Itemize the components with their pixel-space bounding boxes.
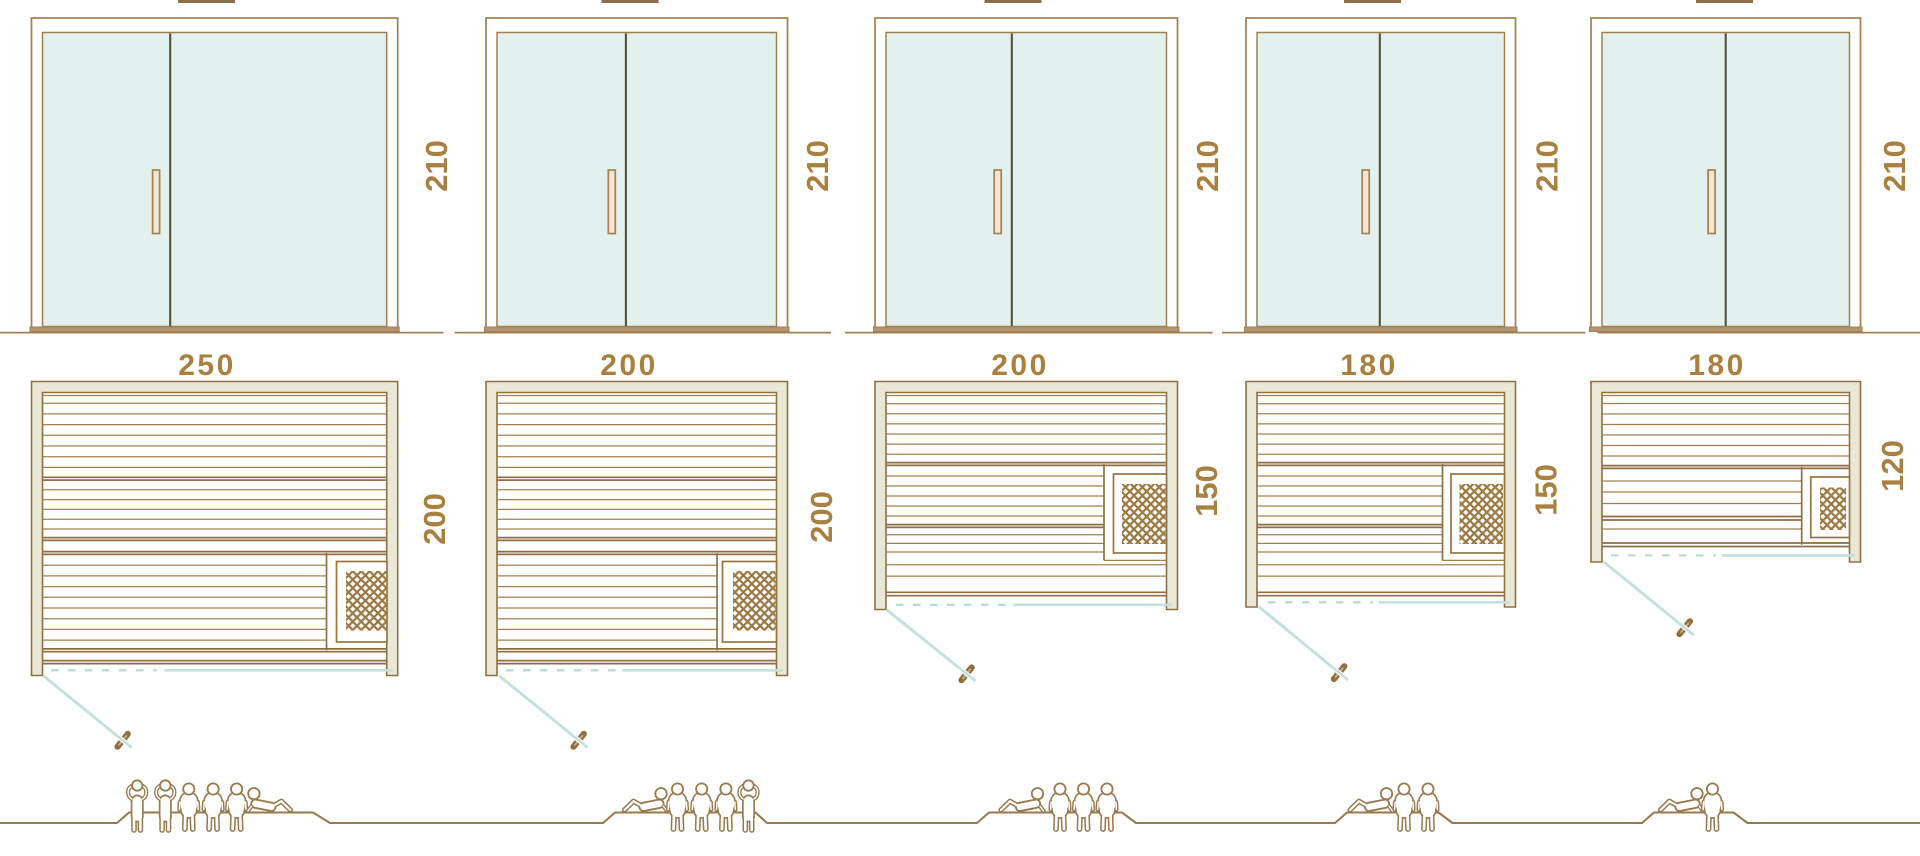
svg-text:210: 210 (1190, 140, 1225, 192)
svg-text:200: 200 (804, 491, 839, 543)
svg-text:210: 210 (1529, 140, 1564, 192)
svg-text:180: 180 (1340, 349, 1398, 382)
svg-text:210: 210 (419, 140, 454, 192)
svg-text:150: 150 (1528, 464, 1563, 516)
svg-text:150: 150 (1189, 465, 1224, 517)
svg-text:210: 210 (800, 140, 835, 192)
svg-text:200: 200 (417, 493, 452, 545)
svg-text:200: 200 (600, 349, 658, 382)
svg-text:250: 250 (178, 349, 236, 382)
svg-text:120: 120 (1875, 440, 1910, 492)
svg-text:200: 200 (991, 349, 1049, 382)
svg-text:180: 180 (1688, 349, 1746, 382)
svg-text:210: 210 (1877, 140, 1912, 192)
